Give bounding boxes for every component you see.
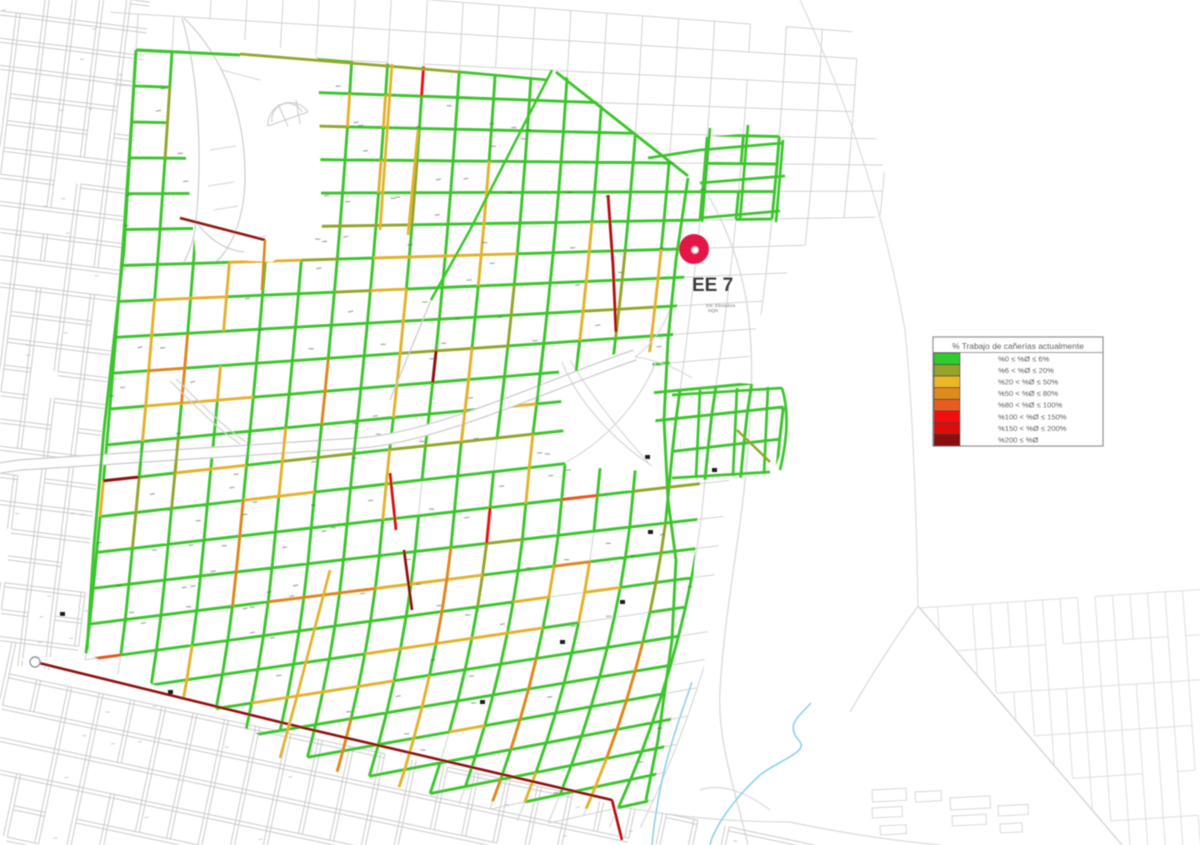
svg-text:%80 < %Ø ≤ 100%: %80 < %Ø ≤ 100%	[998, 401, 1063, 410]
svg-text:%100 < %Ø ≤ 150%: %100 < %Ø ≤ 150%	[998, 412, 1067, 421]
svg-text:%6 < %Ø ≤ 20%: %6 < %Ø ≤ 20%	[998, 366, 1054, 375]
svg-text:NQN: NQN	[708, 308, 718, 313]
svg-text:% Trabajo de cañerías actualme: % Trabajo de cañerías actualmente	[952, 341, 1084, 351]
svg-text:EE 7: EE 7	[692, 275, 733, 296]
svg-text:%50 < %Ø ≤ 80%: %50 < %Ø ≤ 80%	[998, 389, 1058, 398]
svg-text:%20 < %Ø ≤ 50%: %20 < %Ø ≤ 50%	[998, 378, 1058, 387]
svg-text:%0 ≤ %Ø ≤ 6%: %0 ≤ %Ø ≤ 6%	[998, 354, 1050, 363]
svg-text:%150 < %Ø ≤ 200%: %150 < %Ø ≤ 200%	[998, 424, 1067, 433]
svg-text:%200 ≤ %Ø: %200 ≤ %Ø	[998, 436, 1039, 445]
